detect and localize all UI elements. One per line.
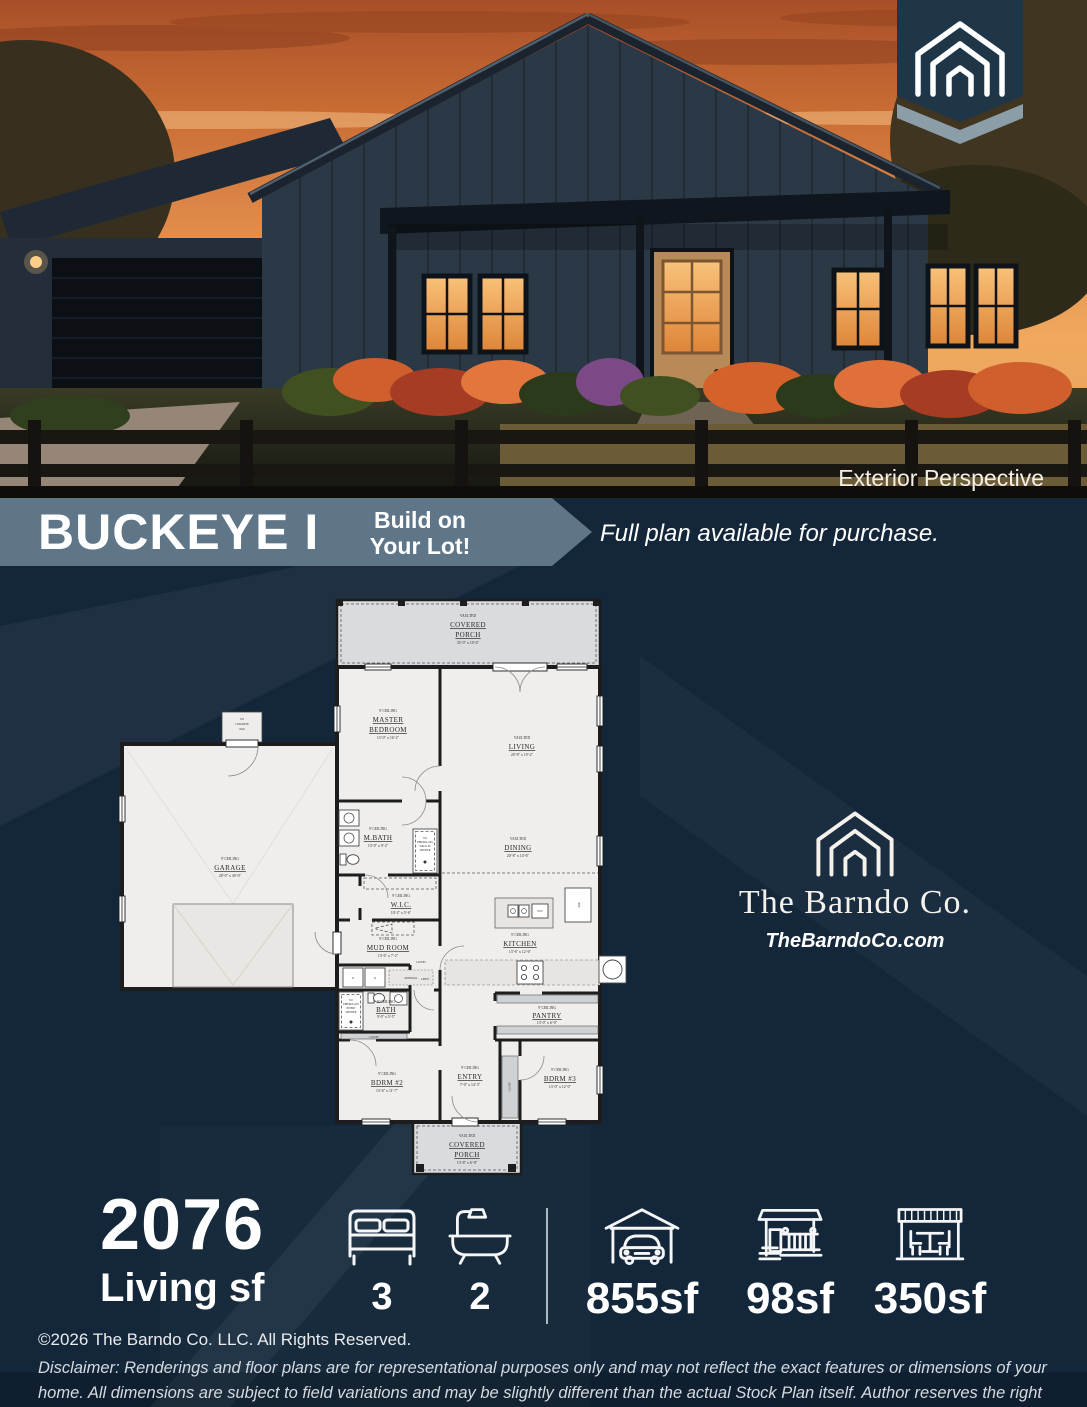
svg-text:28'-0" x 30'-0": 28'-0" x 30'-0" bbox=[219, 874, 242, 878]
porch-stat: 98sf bbox=[730, 1204, 850, 1324]
svg-text:MUD ROOM: MUD ROOM bbox=[367, 944, 410, 952]
svg-text:W.I.C.: W.I.C. bbox=[391, 901, 412, 909]
svg-text:CLOSET: CLOSET bbox=[509, 1082, 512, 1092]
svg-text:9' CEILING: 9' CEILING bbox=[379, 937, 397, 941]
svg-text:ENTRY: ENTRY bbox=[458, 1073, 483, 1081]
svg-text:WALK-IN: WALK-IN bbox=[419, 845, 430, 848]
svg-text:BDRM #2: BDRM #2 bbox=[371, 1079, 403, 1087]
optional-bench-label: OPTIONAL bbox=[405, 977, 418, 980]
svg-text:CONCRETE: CONCRETE bbox=[235, 723, 249, 726]
svg-text:9' CEILING: 9' CEILING bbox=[551, 1068, 569, 1072]
disclaimer-text: Disclaimer: Renderings and floor plans a… bbox=[38, 1356, 1058, 1407]
svg-text:9' CEILING: 9' CEILING bbox=[369, 827, 387, 831]
baths-stat: 2 bbox=[420, 1204, 540, 1319]
svg-text:COVERED: COVERED bbox=[449, 1141, 485, 1149]
room-label-wic: 9' CEILINGW.I.C. 10'-2" x 5'-6" bbox=[391, 894, 412, 915]
svg-text:GARAGE: GARAGE bbox=[214, 864, 246, 872]
plan-title: BUCKEYE I bbox=[38, 506, 319, 558]
svg-text:PORCH: PORCH bbox=[455, 631, 480, 639]
svg-text:PORCH: PORCH bbox=[454, 1151, 479, 1159]
svg-text:13'-0" x 6'-0": 13'-0" x 6'-0" bbox=[537, 1021, 558, 1025]
svg-text:9' CEILING: 9' CEILING bbox=[511, 933, 529, 937]
patio-sf-value: 350sf bbox=[870, 1274, 990, 1324]
svg-text:VAULTED: VAULTED bbox=[514, 736, 531, 740]
svg-text:20'-8" x 19'-2": 20'-8" x 19'-2" bbox=[511, 753, 534, 757]
svg-text:13'-0" x 16'-2": 13'-0" x 16'-2" bbox=[377, 736, 400, 740]
svg-text:9' CEILING: 9' CEILING bbox=[377, 1000, 395, 1004]
toilet-icon bbox=[347, 855, 359, 865]
svg-text:7'-0" x 14'-3": 7'-0" x 14'-3" bbox=[460, 1083, 481, 1087]
svg-text:VAULTED: VAULTED bbox=[460, 614, 477, 618]
svg-text:9' CEILING: 9' CEILING bbox=[392, 894, 410, 898]
brand-website: TheBarndoCo.com bbox=[690, 930, 1020, 953]
svg-text:DINING: DINING bbox=[504, 844, 531, 852]
callout-line-2: Your Lot! bbox=[340, 533, 500, 559]
svg-text:VAULTED: VAULTED bbox=[459, 1134, 476, 1138]
svg-text:BDRM #3: BDRM #3 bbox=[544, 1075, 576, 1083]
living-sf-label: Living sf bbox=[100, 1266, 280, 1311]
svg-text:KITCHEN: KITCHEN bbox=[503, 940, 537, 948]
svg-text:10'-2" x 5'-6": 10'-2" x 5'-6" bbox=[391, 911, 412, 915]
flyer-page: Exterior Perspective BUCKEYE I Build on … bbox=[0, 0, 1087, 1407]
porch-icon bbox=[752, 1204, 828, 1268]
dishwasher-label: D/W bbox=[537, 910, 543, 913]
pantry-shelf bbox=[497, 1026, 598, 1034]
svg-text:9' CEILING: 9' CEILING bbox=[379, 709, 397, 713]
living-sf-value: 2076 bbox=[100, 1188, 280, 1262]
porch-sf-value: 98sf bbox=[730, 1274, 850, 1324]
svg-text:9'-0" x 5'-5": 9'-0" x 5'-5" bbox=[377, 1015, 396, 1019]
brand-name: The Barndo Co. bbox=[690, 884, 1020, 922]
svg-text:13'-0" x 12'-0": 13'-0" x 12'-0" bbox=[549, 1085, 572, 1089]
pet-wash-label: PET WASH bbox=[387, 919, 400, 922]
garage-sf-value: 855sf bbox=[582, 1274, 702, 1324]
exterior-photo-scene: Exterior Perspective bbox=[0, 0, 1087, 498]
svg-text:SHOWER: SHOWER bbox=[346, 1011, 357, 1014]
living-sf-stat: 2076 Living sf bbox=[100, 1188, 280, 1311]
callout-line-1: Build on bbox=[340, 507, 500, 533]
svg-text:20'-8" x 14'-6": 20'-8" x 14'-6" bbox=[507, 854, 530, 858]
svg-text:PAD: PAD bbox=[240, 728, 245, 731]
svg-text:9' CEILING: 9' CEILING bbox=[461, 1066, 479, 1070]
svg-text:FIBERGLASS: FIBERGLASS bbox=[417, 841, 433, 844]
svg-text:SHOWER: SHOWER bbox=[420, 849, 431, 852]
svg-text:D: D bbox=[374, 977, 376, 980]
bed-icon bbox=[344, 1204, 420, 1268]
svg-text:9' CEILING: 9' CEILING bbox=[538, 1006, 556, 1010]
garage-stat: 855sf bbox=[582, 1204, 702, 1324]
purchase-note: Full plan available for purchase. bbox=[600, 520, 939, 548]
svg-text:M.BATH: M.BATH bbox=[364, 834, 393, 842]
svg-text:MASTER: MASTER bbox=[373, 716, 404, 724]
svg-text:PANTRY: PANTRY bbox=[532, 1012, 561, 1020]
title-banner: BUCKEYE I Build on Your Lot! Full plan a… bbox=[0, 498, 1087, 566]
svg-text:13'-0" x 9'-2": 13'-0" x 9'-2" bbox=[368, 844, 389, 848]
build-on-your-lot-callout: Build on Your Lot! bbox=[340, 507, 500, 559]
svg-text:9' CEILING: 9' CEILING bbox=[221, 857, 239, 861]
range-icon bbox=[517, 961, 543, 984]
svg-text:BEDROOM: BEDROOM bbox=[369, 726, 407, 734]
svg-text:INSERT: INSERT bbox=[347, 1007, 356, 1010]
bathtub-icon bbox=[442, 1204, 518, 1268]
linen-label: LINEN bbox=[421, 978, 429, 981]
brand-block: The Barndo Co. TheBarndoCo.com bbox=[690, 810, 1020, 953]
svg-text:VAULTED: VAULTED bbox=[510, 837, 527, 841]
patio-stat: 350sf bbox=[870, 1204, 990, 1324]
room-label-entry: 9' CEILINGENTRY 7'-0" x 14'-3" bbox=[458, 1066, 483, 1087]
svg-text:35'-0" x 10'-6": 35'-0" x 10'-6" bbox=[457, 641, 480, 645]
floor-plan: 3x3 CONCRETE PAD bbox=[110, 586, 630, 1190]
stats-divider bbox=[546, 1208, 548, 1324]
pantry-shelf bbox=[497, 995, 598, 1003]
svg-text:13'-6" x 12'-6": 13'-6" x 12'-6" bbox=[509, 950, 532, 954]
baths-count: 2 bbox=[420, 1276, 540, 1319]
room-label-bath: 9' CEILINGBATH 9'-0" x 5'-5" bbox=[376, 1000, 396, 1019]
svg-text:CLOSET: CLOSET bbox=[416, 961, 426, 964]
svg-text:BATH: BATH bbox=[376, 1006, 396, 1014]
svg-text:FIBERGLASS: FIBERGLASS bbox=[343, 1003, 359, 1006]
svg-text:9' CEILING: 9' CEILING bbox=[378, 1072, 396, 1076]
barn-logo-icon bbox=[780, 810, 930, 878]
ref-label: REF bbox=[577, 903, 580, 908]
main-section: 3x3 CONCRETE PAD bbox=[0, 566, 1087, 1407]
svg-text:LIVING: LIVING bbox=[509, 743, 536, 751]
svg-text:CLOSET: CLOSET bbox=[369, 1036, 379, 1039]
svg-text:COVERED: COVERED bbox=[450, 621, 486, 629]
garage-icon bbox=[602, 1204, 682, 1268]
patio-icon bbox=[890, 1204, 970, 1268]
svg-text:13'-6" x 7'-2": 13'-6" x 7'-2" bbox=[378, 954, 399, 958]
photo-caption: Exterior Perspective bbox=[838, 465, 1044, 491]
copyright-text: ©2026 The Barndo Co. LLC. All Rights Res… bbox=[38, 1330, 411, 1350]
svg-text:13'-6" x 11'-7": 13'-6" x 11'-7" bbox=[376, 1089, 398, 1093]
exterior-photo: Exterior Perspective bbox=[0, 0, 1087, 498]
svg-text:13'-8" x 6'-8": 13'-8" x 6'-8" bbox=[457, 1161, 478, 1165]
